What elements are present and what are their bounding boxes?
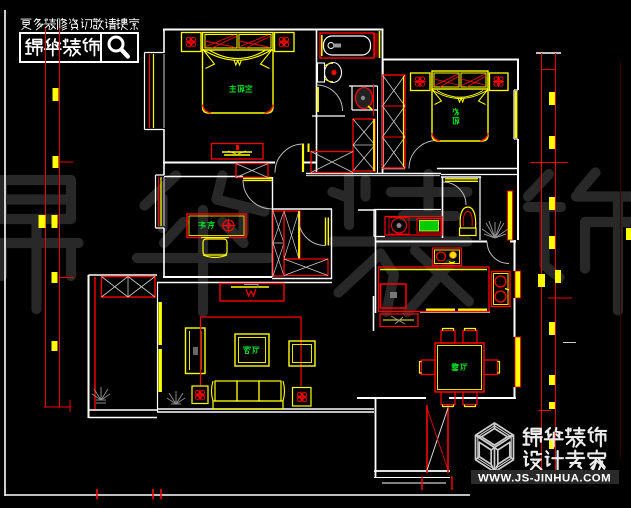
- svg-text:WWW.JS-JINHUA.COM: WWW.JS-JINHUA.COM: [478, 473, 611, 485]
